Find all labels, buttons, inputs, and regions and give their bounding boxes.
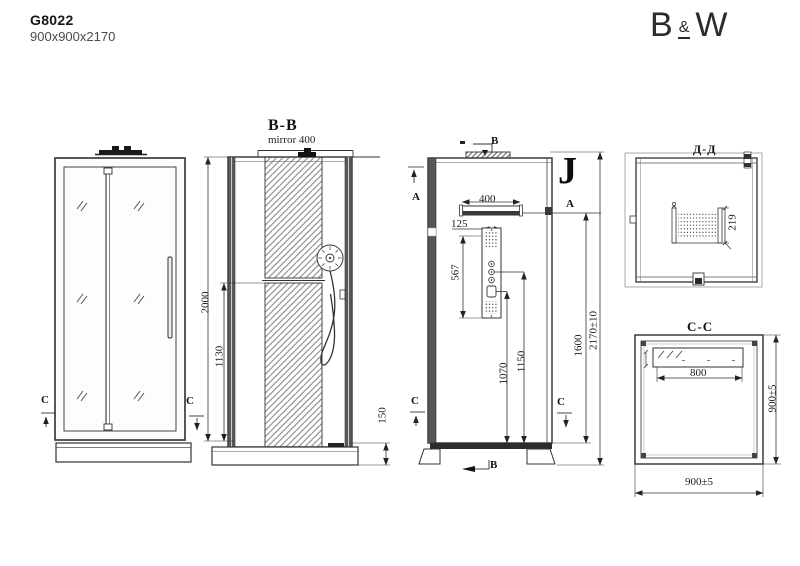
dim-label-2000: 2000	[201, 281, 212, 325]
section-dd-drawing	[618, 152, 793, 294]
front-frame	[55, 158, 185, 440]
logo-ampersand: &	[678, 20, 691, 39]
shower-tray	[56, 443, 191, 462]
dim-label-900-bottom: 900±5	[685, 477, 713, 488]
b-label-bottom: B	[490, 460, 497, 471]
dim-label-125: 125	[451, 219, 468, 230]
dim-label-1070: 1070	[499, 352, 510, 396]
drawing-sheet: G8022 900x900x2170 B & W	[0, 0, 800, 566]
mirror-panel-lower	[265, 283, 322, 447]
top-rail	[95, 146, 147, 155]
wall-notch	[630, 216, 636, 223]
dim-label-567: 567	[451, 251, 462, 295]
section-dd-title: Д-Д	[693, 143, 717, 155]
front-view-drawing	[35, 140, 210, 485]
a-label-right: A	[566, 199, 574, 210]
back-wall-profile	[428, 158, 436, 443]
front-section-label-right: C	[186, 396, 194, 407]
section-c-mark-left	[410, 412, 425, 426]
door-mark-j: J	[558, 152, 577, 190]
section-a-mark-left	[408, 167, 424, 183]
mirror-panel-upper	[265, 157, 322, 278]
dim-label-800: 800	[690, 368, 707, 379]
corner-bracket	[744, 152, 751, 168]
section-bb-drawing	[200, 144, 400, 476]
dim-label-1130: 1130	[215, 335, 226, 379]
c-label-left: C	[411, 396, 419, 407]
door-handle-bracket	[340, 290, 345, 299]
shower-panel	[482, 228, 501, 318]
mirror-width-label: mirror 400	[268, 135, 315, 146]
dim-label-400: 400	[479, 194, 496, 205]
section-cc-title: C-C	[687, 320, 713, 333]
overall-dimensions: 900x900x2170	[30, 29, 115, 44]
interior-view-drawing	[405, 133, 610, 483]
logo-letter-w: W	[695, 8, 727, 42]
model-number: G8022	[30, 12, 74, 28]
mirror-glass-top	[644, 348, 743, 368]
front-section-label-left: C	[41, 395, 49, 406]
dim-label-150: 150	[378, 394, 389, 438]
dim-label-900-right: 900±5	[768, 377, 779, 421]
dim-label-1600: 1600	[574, 324, 585, 368]
tray-base	[419, 443, 555, 464]
door-handle	[168, 257, 172, 338]
logo-letter-b: B	[650, 8, 673, 42]
section-c-mark-left	[41, 413, 56, 427]
dim-label-219: 219	[728, 201, 739, 245]
top-shower-mount	[298, 148, 316, 157]
hand-shower-head	[317, 245, 343, 271]
shelf-mount	[545, 207, 552, 215]
shelf-bar	[460, 205, 523, 216]
dim-label-1150: 1150	[517, 340, 528, 384]
c-label-right: C	[557, 397, 565, 408]
b-label-top: B	[491, 136, 498, 147]
brand-logo: B & W	[650, 8, 727, 42]
dim-label-2170: 2170±10	[589, 306, 600, 356]
section-c-mark-right	[557, 413, 572, 427]
a-label-left: A	[412, 192, 420, 203]
section-b-mark-bottom	[462, 460, 489, 472]
section-bb-title: B-B	[268, 118, 298, 134]
drain-detail	[693, 273, 704, 285]
dim-1600	[552, 213, 591, 443]
